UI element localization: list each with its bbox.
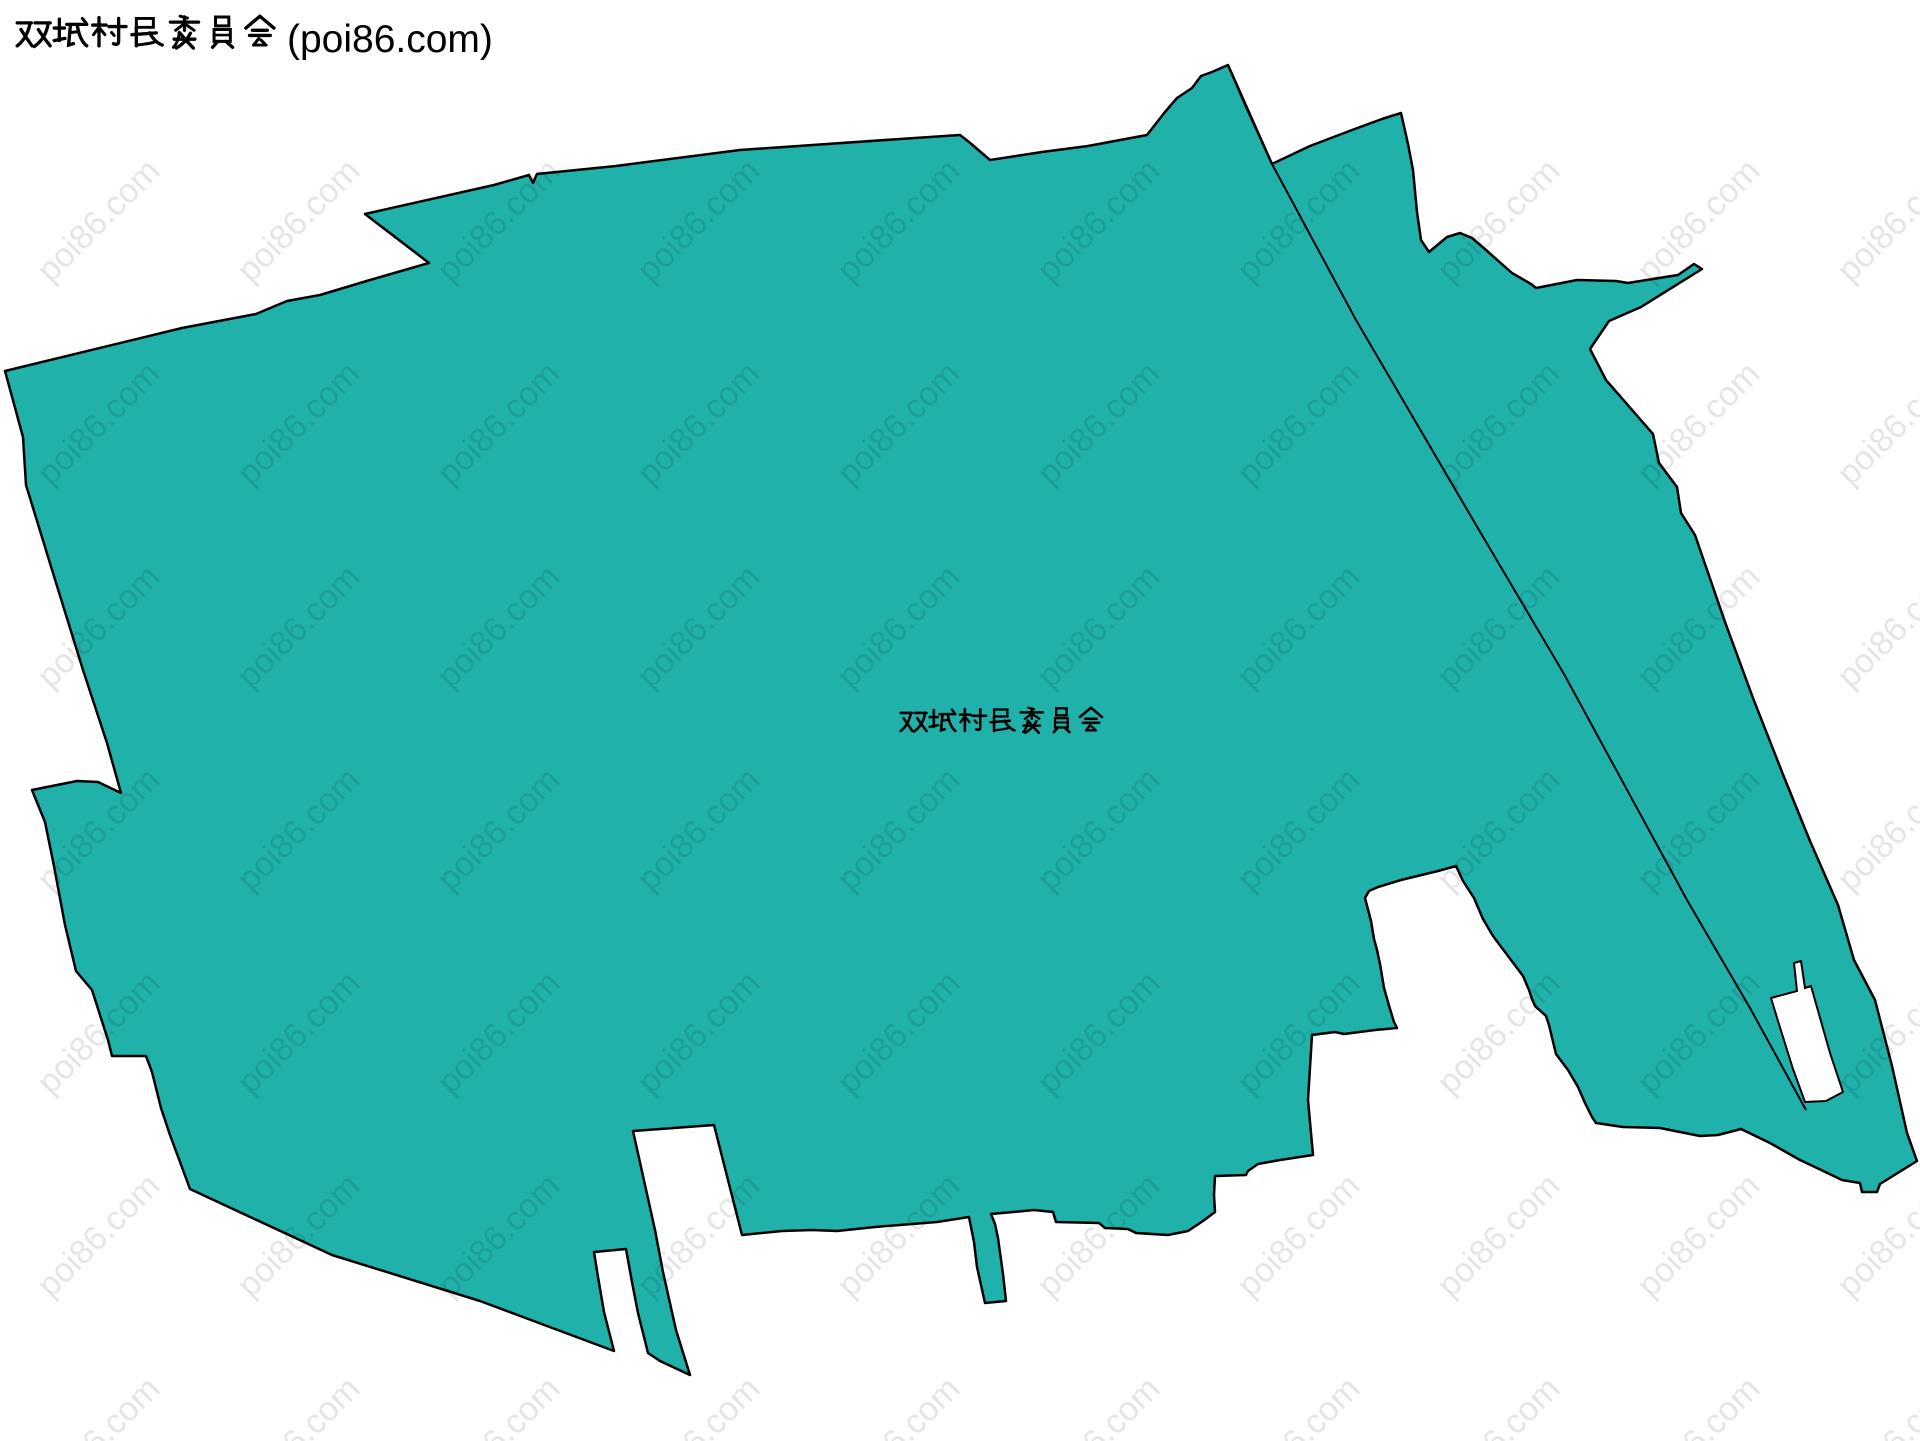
svg-text:(poi86.com): (poi86.com) xyxy=(287,18,493,61)
